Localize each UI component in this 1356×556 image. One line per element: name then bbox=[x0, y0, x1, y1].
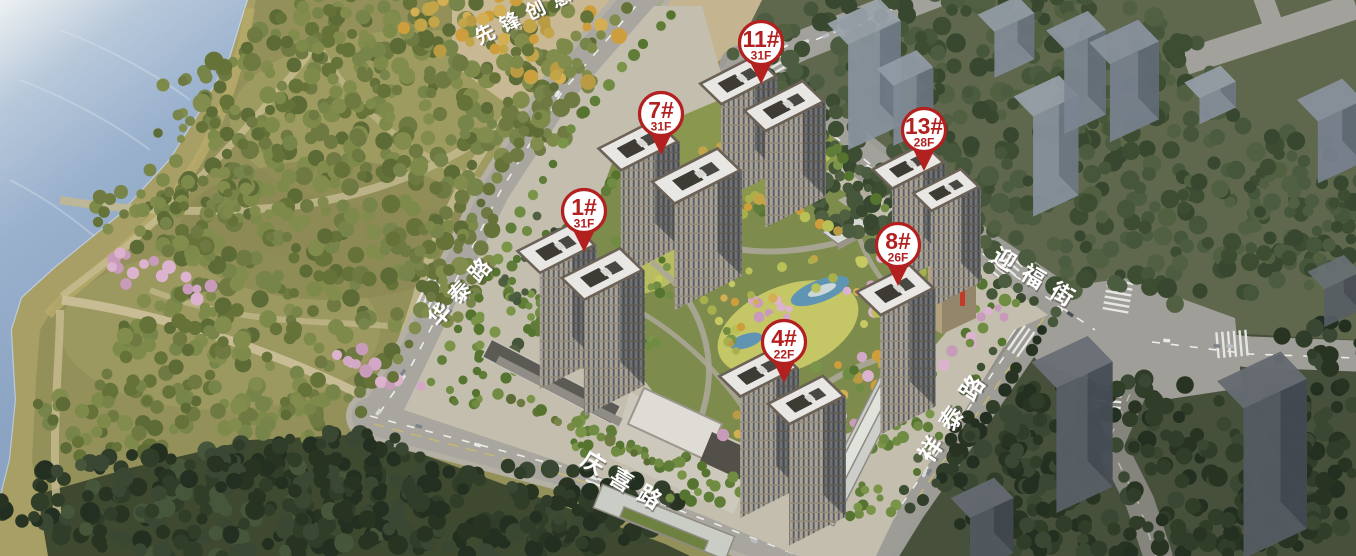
svg-text:31F: 31F bbox=[574, 217, 595, 231]
svg-text:26F: 26F bbox=[888, 251, 909, 265]
svg-text:22F: 22F bbox=[774, 348, 795, 362]
svg-text:31F: 31F bbox=[651, 120, 672, 134]
svg-text:28F: 28F bbox=[914, 136, 935, 150]
svg-text:31F: 31F bbox=[751, 49, 772, 63]
